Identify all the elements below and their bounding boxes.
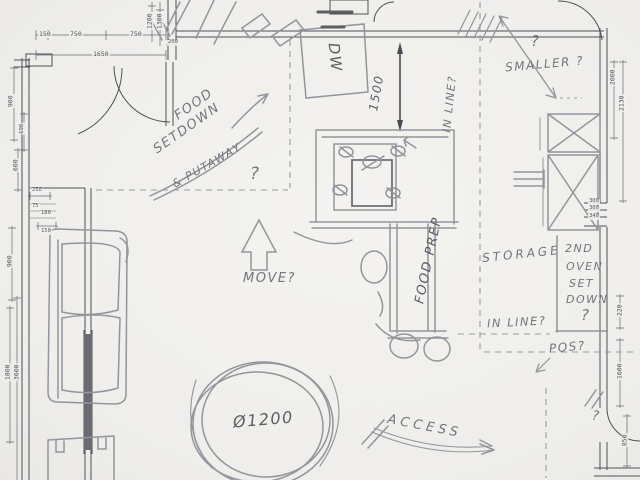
dim-300-a: 300 <box>588 199 600 205</box>
dim-2130: 2130 <box>619 94 626 112</box>
annotation-oven-line1: 2ND <box>565 243 593 254</box>
dim-850: 850 <box>622 433 629 447</box>
dim-180: 180 <box>40 211 52 217</box>
dim-1800: 1800 <box>5 363 12 381</box>
dim-300-b: 300 <box>588 206 600 212</box>
dim-690: 690 <box>20 123 26 135</box>
annotation-question-smaller: ? <box>531 34 540 49</box>
dim-340: 340 <box>588 214 600 220</box>
dim-1300: 1300 <box>157 12 164 30</box>
dim-1200: 1200 <box>147 12 154 30</box>
annotation-inline-bottom: IN LINE? <box>487 315 547 330</box>
dim-900-a: 900 <box>8 94 15 108</box>
dim-75: 75 <box>31 204 40 210</box>
dim-900-b: 900 <box>7 254 14 268</box>
annotation-question-center: ? <box>250 166 261 183</box>
plan-linework <box>0 0 640 480</box>
dim-150-b: 150 <box>40 229 52 235</box>
dim-3600: 3600 <box>14 363 21 381</box>
dim-250: 250 <box>31 188 43 194</box>
dim-1500-arrow <box>397 42 403 132</box>
annotation-move: MOVE? <box>243 272 296 285</box>
annotation-dw: DW <box>326 42 344 73</box>
dim-2000: 2000 <box>610 68 617 86</box>
dim-200: 200 <box>167 40 179 46</box>
dim-750-a: 750 <box>69 31 83 38</box>
dim-600: 600 <box>13 158 20 172</box>
annotation-oven-line3: SET <box>569 278 594 289</box>
annotation-oven-line4: DOWN <box>566 294 608 305</box>
dim-150: 150 <box>38 31 52 38</box>
annotation-oven-line2: OVEN <box>566 261 603 272</box>
floor-plan-scan: 150 750 750 1650 1200 1300 200 900 690 6… <box>0 0 640 480</box>
dim-220: 220 <box>617 303 624 317</box>
annotation-question-pos: ? <box>591 409 601 423</box>
dim-750-b: 750 <box>129 31 143 38</box>
annotation-oven-question: ? <box>581 308 590 323</box>
dim-1600: 1600 <box>617 362 624 380</box>
dim-1650: 1650 <box>92 51 110 58</box>
annotation-pos: POS? <box>549 339 587 354</box>
